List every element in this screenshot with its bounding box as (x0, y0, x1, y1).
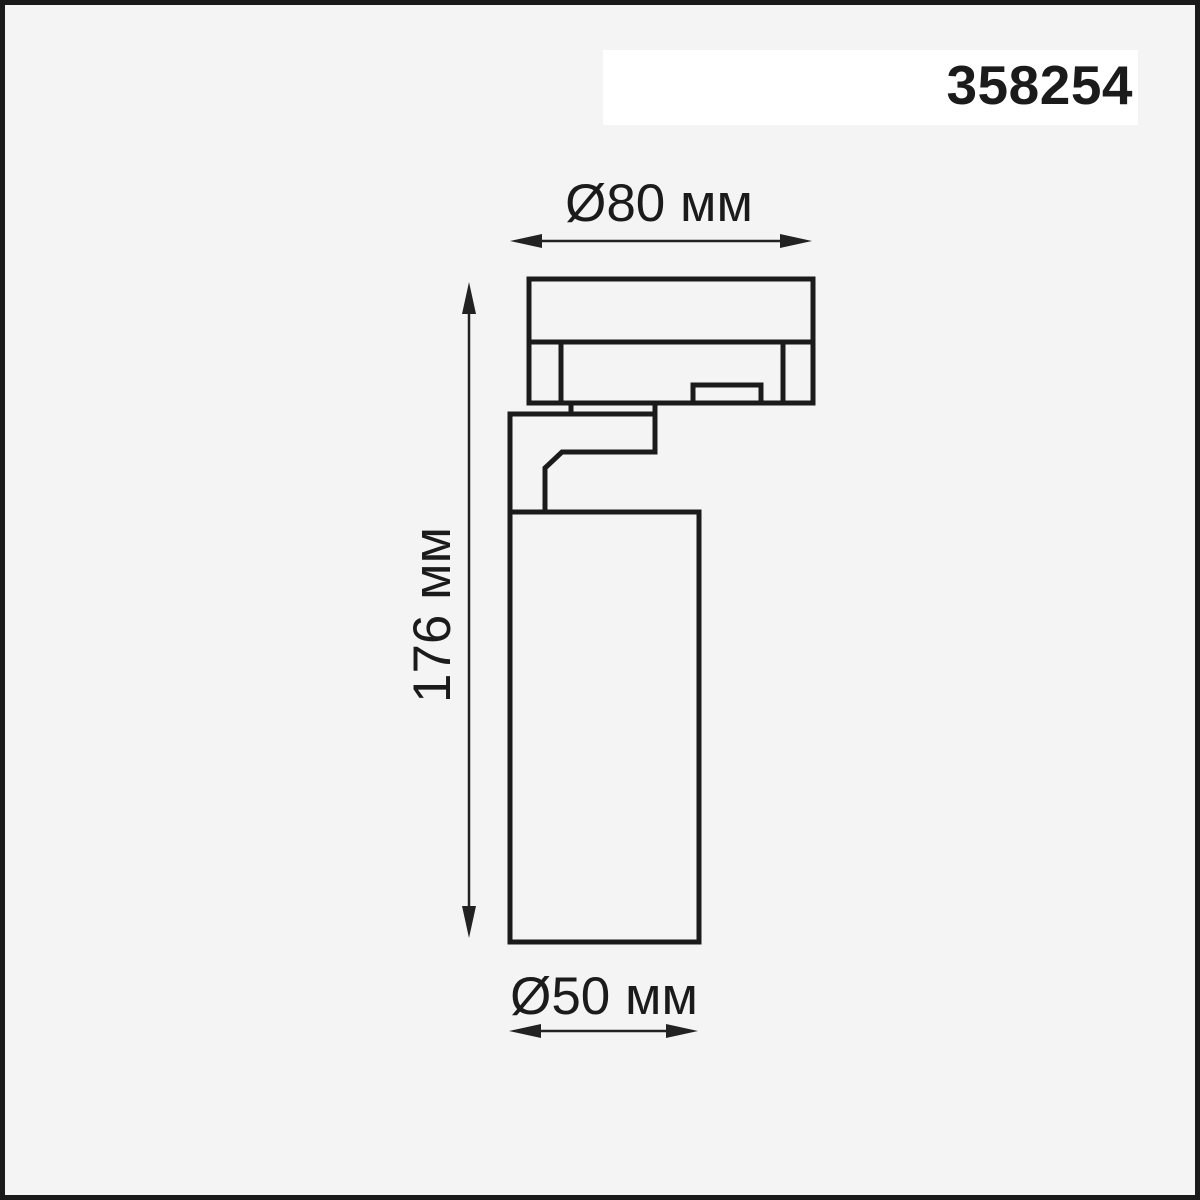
left-arrowhead-icon (510, 234, 542, 248)
top-width-label: Ø80 мм (565, 174, 753, 233)
track-adapter-outline (529, 279, 813, 414)
top-width-dimension: Ø80 мм (510, 174, 812, 248)
mounting-arm-outline (510, 414, 655, 512)
right-arrowhead-icon (666, 1024, 698, 1038)
lamp-body-outline (510, 512, 699, 942)
height-label: 176 мм (403, 527, 462, 703)
up-arrowhead-icon (462, 282, 476, 314)
bottom-width-label: Ø50 мм (510, 967, 698, 1026)
bottom-width-dimension: Ø50 мм (509, 967, 698, 1038)
product-dimension-page: 358254 Ø80 мм (0, 0, 1200, 1200)
right-arrowhead-icon (780, 234, 812, 248)
dimension-diagram: Ø80 мм 176 мм Ø50 мм (5, 5, 1195, 1195)
down-arrowhead-icon (462, 906, 476, 938)
height-dimension: 176 мм (403, 282, 476, 938)
left-arrowhead-icon (509, 1024, 541, 1038)
